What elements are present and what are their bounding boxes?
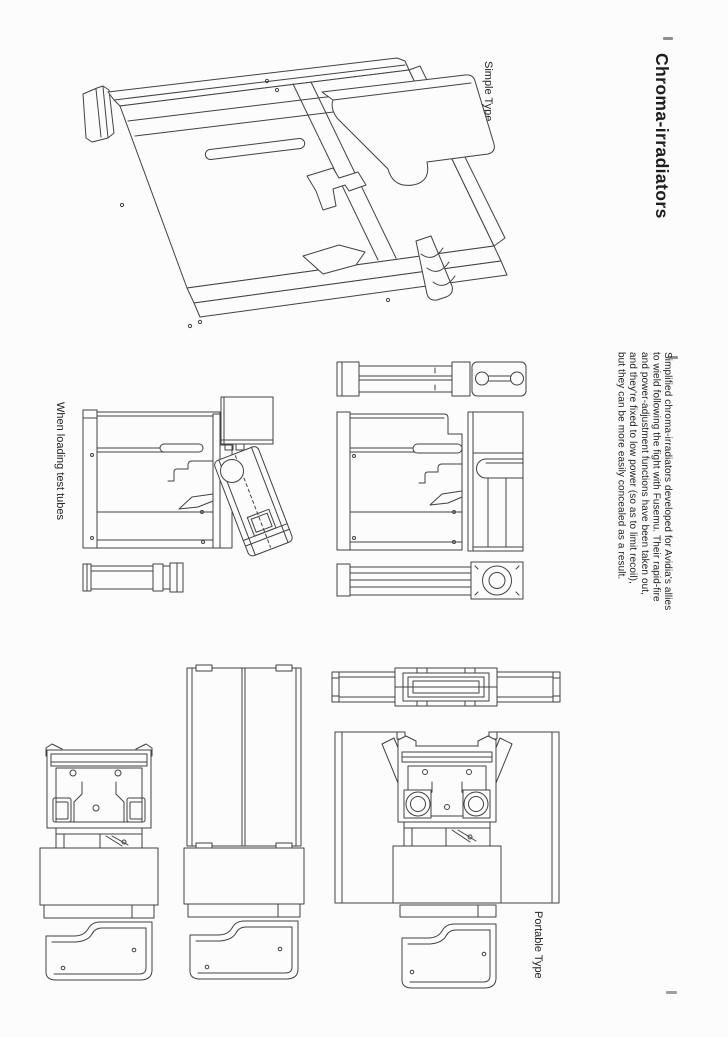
figure-portable-front-view xyxy=(332,726,562,996)
page-title: Chroma-irradiators xyxy=(648,53,676,233)
section-tick-bottom xyxy=(666,991,677,994)
description-line: to wield following the fight with Fusemu… xyxy=(650,352,662,652)
figure-portable-rear-view xyxy=(40,740,158,990)
section-tick-title xyxy=(663,37,673,40)
label-when-loading-test-tubes: When loading test tubes xyxy=(53,402,67,520)
artbook-page: Chroma-irradiators Simplified chroma-irr… xyxy=(0,0,728,1037)
description-paragraph: Simplified chroma-irradiators developed … xyxy=(615,352,673,652)
description-line: and power-adjustment functions have been… xyxy=(638,352,650,652)
figure-simple-type-bottom-view xyxy=(336,561,528,601)
figure-simple-type-isometric xyxy=(75,48,515,348)
description-line: Simplified chroma-irradiators developed … xyxy=(661,352,673,652)
figure-simple-type-top-view xyxy=(336,360,528,400)
description-line: and they're fixed to low power (so as to… xyxy=(627,352,639,652)
figure-portable-top-view xyxy=(331,666,561,708)
figure-loading-side-view xyxy=(80,392,305,604)
description-line: but they can be more easily concealed as… xyxy=(615,352,627,652)
test-tube-drawing xyxy=(83,563,183,592)
figure-simple-type-side-view xyxy=(336,406,528,556)
figure-portable-folded-view xyxy=(184,664,304,990)
